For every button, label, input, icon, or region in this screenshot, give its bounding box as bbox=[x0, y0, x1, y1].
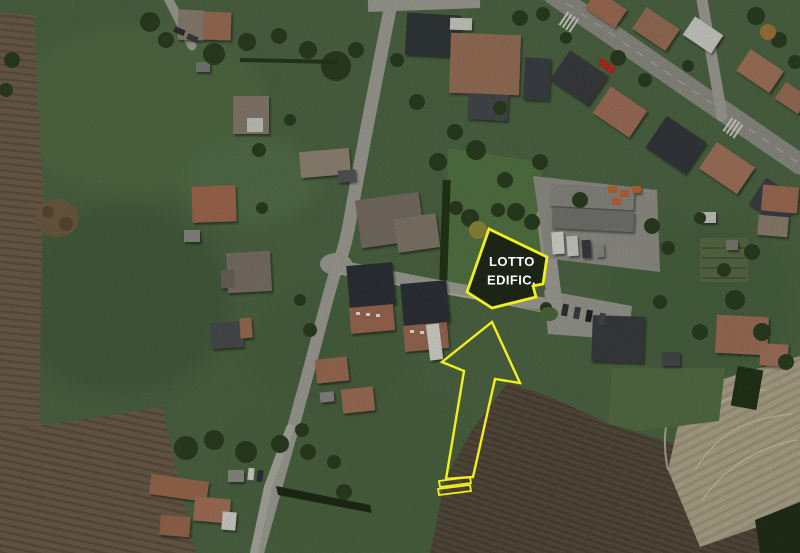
photo-grain-overlay bbox=[0, 0, 800, 553]
lot-label-line1: LOTTO bbox=[489, 254, 535, 269]
aerial-map-image: LOTTO EDIFIC. bbox=[0, 0, 800, 553]
lot-label-line2: EDIFIC. bbox=[487, 273, 536, 288]
aerial-photo-canvas: LOTTO EDIFIC. bbox=[0, 0, 800, 553]
